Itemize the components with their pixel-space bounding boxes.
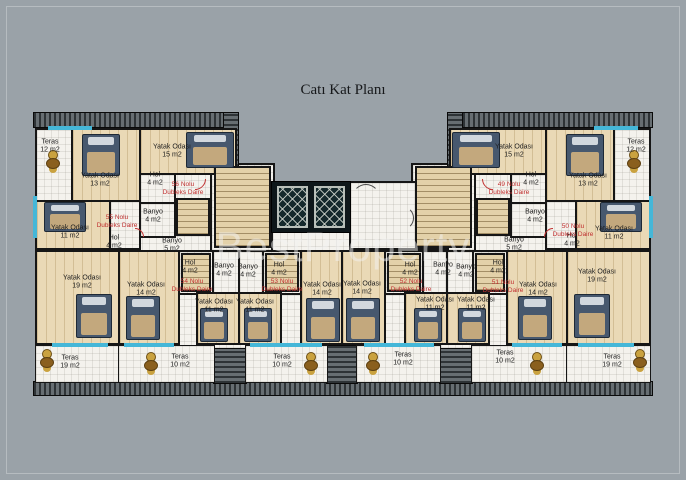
bed-icon — [126, 296, 160, 340]
room-label: Yatak Odası 19 m2 — [63, 275, 101, 292]
terrace-furniture-icon — [304, 352, 317, 378]
window-marker — [512, 343, 562, 347]
room-terrace — [471, 345, 568, 383]
apartment-number-label: 49 Nolu Dubleks Daire — [489, 181, 530, 197]
plan-title: Catı Kat Planı — [0, 82, 686, 99]
room-label: Yatak Odası 15 m2 — [153, 144, 191, 161]
apartment-number-label: 51 Nolu Dubleks Daire — [483, 279, 524, 295]
window-marker — [48, 126, 92, 130]
room-label: Teras 19 m2 — [602, 354, 621, 371]
apartment-number-label: 54 Nolu Dubleks Daire — [172, 278, 213, 294]
bed-icon — [566, 134, 604, 176]
room-label: Hol 4 m2 — [490, 260, 506, 277]
apartment-number-label: 50 Nolu Dubleks Daire — [553, 223, 594, 239]
room-label: Yatak Odası 15 m2 — [495, 144, 533, 161]
apartment-number-label: 52 Nolu Dubleks Daire — [391, 278, 432, 294]
floor-plan: BestProperty Teras 12 m2Yatak Odası 13 m… — [0, 0, 686, 480]
bed-icon — [346, 298, 380, 342]
room-label: Teras 19 m2 — [60, 355, 79, 372]
room-label: Teras 12 m2 — [40, 139, 59, 156]
bed-icon — [518, 296, 552, 340]
room-label: Yatak Odası 13 m2 — [81, 173, 119, 190]
room-label: Hol 4 m2 — [182, 260, 198, 277]
terrace-furniture-icon — [144, 352, 157, 378]
room-label: Yatak Odası 11 m2 — [595, 226, 633, 243]
window-marker — [250, 343, 322, 347]
room-label: Yatak Odası 11 m2 — [236, 299, 274, 316]
apartment-number-label: 55 Nolu Dubleks Daire — [97, 214, 138, 230]
bed-icon — [82, 134, 120, 176]
bed-icon — [306, 298, 340, 342]
room-label: Banyo 4 m2 — [143, 209, 163, 226]
apartment-number-label: 56 Nolu Dubleks Daire — [163, 181, 204, 197]
floor-plan-page: { "title": "Catı Kat Planı", "watermark"… — [0, 0, 686, 480]
window-marker — [594, 126, 638, 130]
room-label: Banyo 4 m2 — [456, 264, 476, 281]
room-label: Hol 4 m2 — [271, 262, 287, 279]
window-marker — [578, 343, 634, 347]
room-label: Teras 12 m2 — [626, 139, 645, 156]
room-label: Yatak Odası 11 m2 — [457, 297, 495, 314]
elevator-icon — [277, 186, 308, 228]
window-marker — [649, 196, 653, 238]
room-label: Teras 10 m2 — [272, 354, 291, 371]
room-label: Hol 4 m2 — [402, 262, 418, 279]
room-label: Teras 10 m2 — [170, 354, 189, 371]
room-label: Banyo 4 m2 — [525, 209, 545, 226]
room-label: Banyo 4 m2 — [238, 264, 258, 281]
room-label: Banyo 4 m2 — [214, 263, 234, 280]
bed-icon — [574, 294, 610, 338]
terrace-furniture-icon — [366, 352, 379, 378]
window-marker — [124, 343, 174, 347]
window-marker — [364, 343, 434, 347]
staircase-icon — [176, 198, 210, 236]
door-arc-icon — [352, 184, 380, 212]
room-label: Yatak Odası 11 m2 — [51, 225, 89, 242]
bed-icon — [76, 294, 112, 338]
terrace-furniture-icon — [633, 349, 646, 375]
room-label: Yatak Odası 14 m2 — [127, 282, 165, 299]
room-label: Hol 4 m2 — [147, 172, 163, 189]
elevator-icon — [314, 186, 345, 228]
room-label: Hol 4 m2 — [106, 235, 122, 252]
room-label: Yatak Odası 19 m2 — [578, 269, 616, 286]
room-label: Yatak Odası 13 m2 — [569, 173, 607, 190]
room-label: Banyo 5 m2 — [504, 237, 524, 254]
bed-icon — [186, 132, 234, 168]
room-terrace — [118, 345, 215, 383]
room-label: Yatak Odası 14 m2 — [519, 282, 557, 299]
room-label: Yatak Odası 11 m2 — [195, 299, 233, 316]
room-label: Banyo 4 m2 — [433, 262, 453, 279]
room-label: Teras 10 m2 — [495, 350, 514, 367]
terrace-furniture-icon — [40, 349, 53, 375]
room-label: Yatak Odası 14 m2 — [303, 282, 341, 299]
window-marker — [52, 343, 108, 347]
room-label: Yatak Odası 14 m2 — [343, 281, 381, 298]
room-label: Banyo 5 m2 — [162, 238, 182, 255]
terrace-furniture-icon — [530, 352, 543, 378]
staircase-icon — [476, 198, 510, 236]
window-marker — [33, 196, 37, 238]
bed-icon — [452, 132, 500, 168]
apartment-number-label: 53 Nolu Dubleks Daire — [262, 278, 303, 294]
room-label: Teras 10 m2 — [393, 352, 412, 369]
room-label: Yatak Odası 11 m2 — [416, 297, 454, 314]
